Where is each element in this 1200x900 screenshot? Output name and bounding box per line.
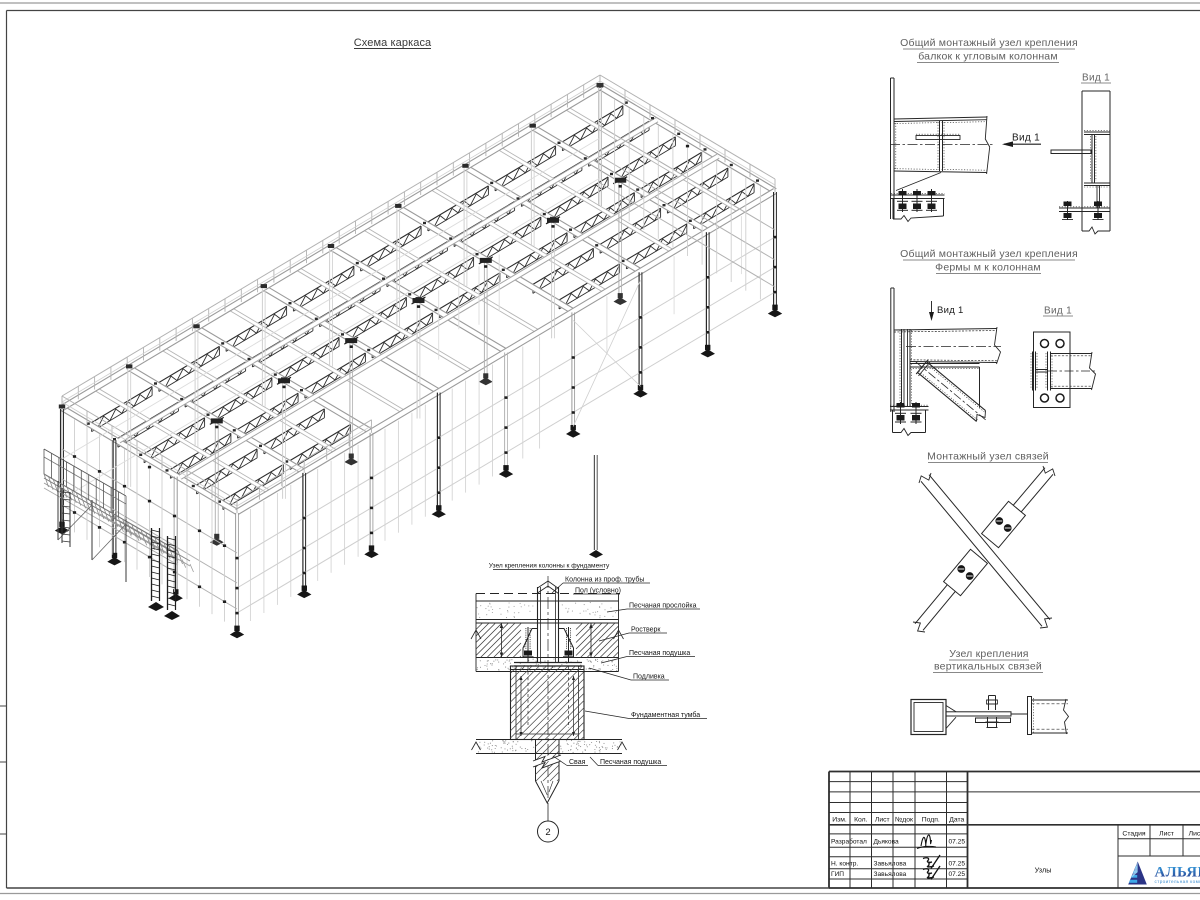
svg-text:Кол.: Кол. bbox=[854, 817, 868, 824]
svg-text:Узел крепления: Узел крепления bbox=[949, 648, 1028, 660]
svg-text:Общий монтажный узел крепления: Общий монтажный узел крепления bbox=[900, 248, 1078, 260]
svg-text:Разработал: Разработал bbox=[831, 838, 867, 846]
svg-text:Пол (условно): Пол (условно) bbox=[575, 588, 621, 595]
svg-text:Песчаная подушка: Песчаная подушка bbox=[629, 650, 690, 657]
svg-text:Свая: Свая bbox=[569, 759, 586, 766]
svg-text:Завьялова: Завьялова bbox=[874, 871, 907, 878]
svg-text:Песчаная прослойка: Песчаная прослойка bbox=[629, 602, 697, 610]
svg-text:Узлы: Узлы bbox=[1035, 866, 1052, 875]
svg-text:Монтажный узел связей: Монтажный узел связей bbox=[927, 451, 1049, 463]
svg-text:07.25: 07.25 bbox=[949, 839, 966, 846]
svg-text:Ростверк: Ростверк bbox=[631, 627, 661, 634]
svg-text:Подливка: Подливка bbox=[633, 674, 665, 681]
svg-text:07.25: 07.25 bbox=[949, 861, 966, 868]
svg-text:Изм.: Изм. bbox=[832, 817, 847, 824]
svg-text:Узел крепления колонны к фунда: Узел крепления колонны к фундаменту bbox=[489, 563, 610, 570]
svg-text:Общий монтажный узел крепления: Общий монтажный узел крепления bbox=[900, 37, 1078, 49]
svg-text:Схема каркаса: Схема каркаса bbox=[354, 37, 432, 49]
svg-text:Вид 1: Вид 1 bbox=[937, 305, 964, 316]
svg-text:Песчаная подушка: Песчаная подушка bbox=[600, 759, 661, 766]
svg-text:балкок к угловым колоннам: балкок к угловым колоннам bbox=[918, 51, 1058, 63]
svg-text:Лист: Лист bbox=[1189, 831, 1200, 838]
svg-text:Стадия: Стадия bbox=[1122, 831, 1145, 838]
svg-text:Вид 1: Вид 1 bbox=[1044, 306, 1072, 317]
svg-text:Дьякова: Дьякова bbox=[874, 839, 900, 846]
svg-text:Завьялова: Завьялова bbox=[874, 861, 907, 868]
svg-text:Подп.: Подп. bbox=[922, 817, 940, 824]
svg-text:Вид 1: Вид 1 bbox=[1082, 73, 1110, 84]
svg-text:07.25: 07.25 bbox=[949, 871, 966, 878]
svg-text:№док: №док bbox=[895, 817, 913, 824]
svg-text:Лист: Лист bbox=[875, 817, 890, 824]
svg-text:строительная компания: строительная компания bbox=[1155, 879, 1200, 884]
svg-text:вертикальных связей: вертикальных связей bbox=[934, 661, 1042, 673]
svg-text:Фундаментная тумба: Фундаментная тумба bbox=[631, 711, 700, 719]
svg-text:Фермы м к колоннам: Фермы м к колоннам bbox=[935, 262, 1041, 274]
svg-text:2: 2 bbox=[545, 827, 550, 838]
svg-text:Лист: Лист bbox=[1159, 831, 1174, 838]
svg-text:Колонна из проф. трубы: Колонна из проф. трубы bbox=[565, 576, 644, 584]
svg-text:Вид 1: Вид 1 bbox=[1012, 133, 1040, 144]
svg-text:Дата: Дата bbox=[949, 817, 964, 824]
svg-text:Н. контр.: Н. контр. bbox=[831, 861, 858, 868]
svg-text:ГИП: ГИП bbox=[831, 871, 844, 878]
